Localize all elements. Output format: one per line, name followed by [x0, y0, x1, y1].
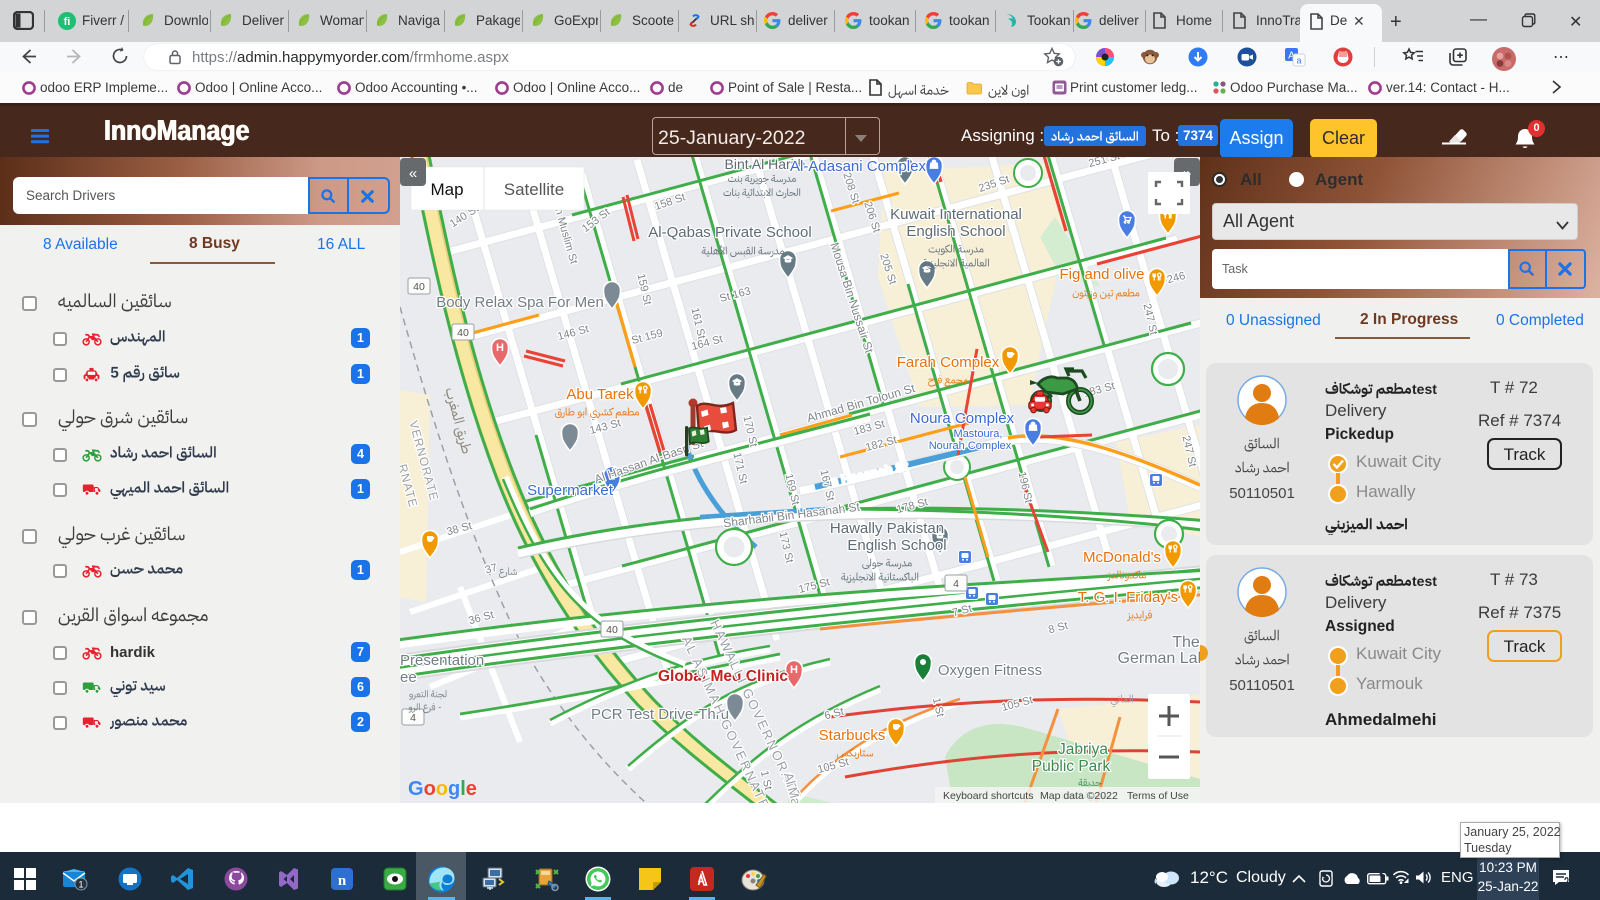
svg-text:English School: English School: [847, 537, 946, 554]
svg-text:Google: Google: [408, 778, 477, 800]
svg-text:PCR Test Drive-Thru: PCR Test Drive-Thru: [591, 706, 729, 723]
svg-text:4: 4: [953, 578, 959, 590]
svg-text:H: H: [496, 342, 504, 354]
svg-text:Satellite: Satellite: [504, 180, 564, 199]
svg-text:German Lab: German Lab: [1118, 650, 1200, 667]
svg-text:Body Relax Spa For Men: Body Relax Spa For Men: [436, 294, 604, 311]
svg-text:ee: ee: [400, 669, 417, 686]
svg-text:Nourah Complex: Nourah Complex: [929, 440, 1012, 452]
svg-text:Fig and olive: Fig and olive: [1059, 266, 1144, 283]
svg-text:Keyboard shortcuts: Keyboard shortcuts: [943, 790, 1033, 802]
svg-text:Public Park: Public Park: [1032, 758, 1111, 775]
svg-text:Al-Adasani Complex: Al-Adasani Complex: [790, 158, 926, 175]
svg-text:40: 40: [606, 624, 618, 636]
svg-text:fi: fi: [64, 16, 71, 28]
svg-text:H: H: [790, 664, 798, 676]
svg-text:English School: English School: [906, 223, 1005, 240]
svg-text:Al-Qabas Private School: Al-Qabas Private School: [648, 224, 811, 241]
svg-text:Presentation: Presentation: [400, 652, 484, 669]
svg-text:40: 40: [457, 327, 469, 339]
svg-text:Jabriya: Jabriya: [1058, 741, 1108, 758]
svg-text:Global Med Clinic: Global Med Clinic: [658, 668, 788, 685]
svg-text:The: The: [1172, 634, 1200, 651]
svg-text:4: 4: [410, 712, 416, 724]
svg-text:1: 1: [78, 880, 83, 890]
svg-text:Terms of Use: Terms of Use: [1127, 790, 1189, 802]
svg-text:Hawally Pakistan: Hawally Pakistan: [830, 520, 944, 537]
svg-text:n: n: [338, 873, 347, 889]
svg-text:Noura Complex: Noura Complex: [910, 410, 1015, 427]
svg-text:Map data ©2022: Map data ©2022: [1040, 790, 1118, 802]
svg-text:40: 40: [413, 281, 425, 293]
svg-text:Oxygen Fitness: Oxygen Fitness: [938, 662, 1042, 679]
svg-text:Kuwait International: Kuwait International: [890, 206, 1022, 223]
svg-text:Starbucks: Starbucks: [819, 727, 886, 744]
svg-text:Mastoura,: Mastoura,: [954, 428, 1003, 440]
svg-text:«: «: [409, 165, 417, 182]
svg-text:Farah Complex: Farah Complex: [897, 354, 1000, 371]
svg-text:Map: Map: [430, 180, 463, 199]
svg-text:McDonald's: McDonald's: [1083, 549, 1161, 566]
svg-text:Abu Tarek: Abu Tarek: [566, 386, 634, 403]
svg-text:a: a: [1296, 56, 1301, 66]
svg-text:T. G. I. Friday's: T. G. I. Friday's: [1078, 589, 1178, 606]
